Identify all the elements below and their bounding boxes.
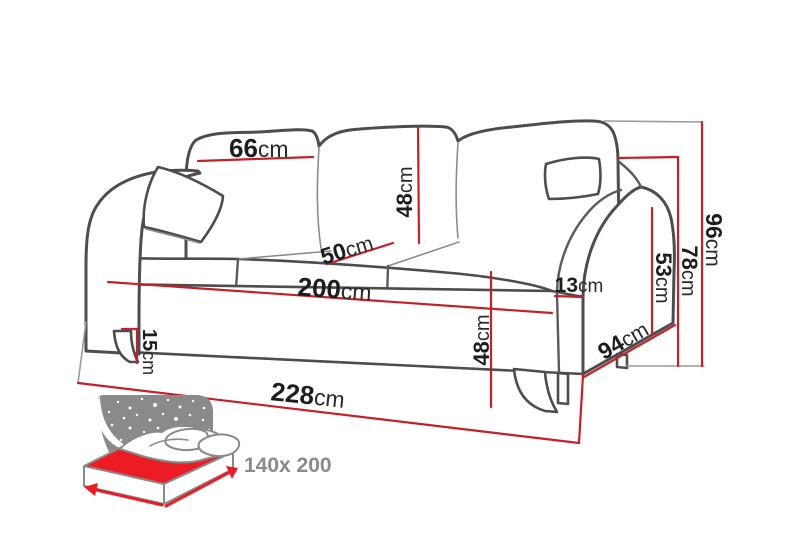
bed-pillow-right [199,434,239,456]
label-total-height: 96cm [701,213,727,267]
label-armrest-width: 13cm [555,274,604,297]
label-armrest-height: 53cm [651,252,676,303]
right-pillow [545,158,600,199]
dimension-line-back-height-tick [618,157,678,158]
dimension-line-back-cushion-height [418,128,419,243]
label-back-cushion-height: 48cm [392,166,417,217]
top-height-extension [604,121,702,122]
front-right-leg-bar [558,373,568,404]
label-seat-height: 48cm [469,314,494,365]
label-back-cushion-width: 66cm [229,133,289,163]
front-right-leg [514,369,557,412]
label-back-height: 78cm [677,245,702,296]
sofa-bed-icon: 140x 200 [84,395,332,506]
dimension-line-total-width-tick [579,375,583,443]
diagram-canvas: 66cm 48cm 50cm 200cm 48cm 13cm 53cm 78cm… [0,0,800,533]
sofa-drawing [86,121,674,412]
label-leg-height: 15cm [138,329,160,375]
bed-size-label: 140x 200 [244,454,332,477]
sofa-dimension-diagram: 66cm 48cm 50cm 200cm 48cm 13cm 53cm 78cm… [0,0,800,533]
right-arm-back-crease [618,161,641,187]
left-width-extension [78,322,86,383]
